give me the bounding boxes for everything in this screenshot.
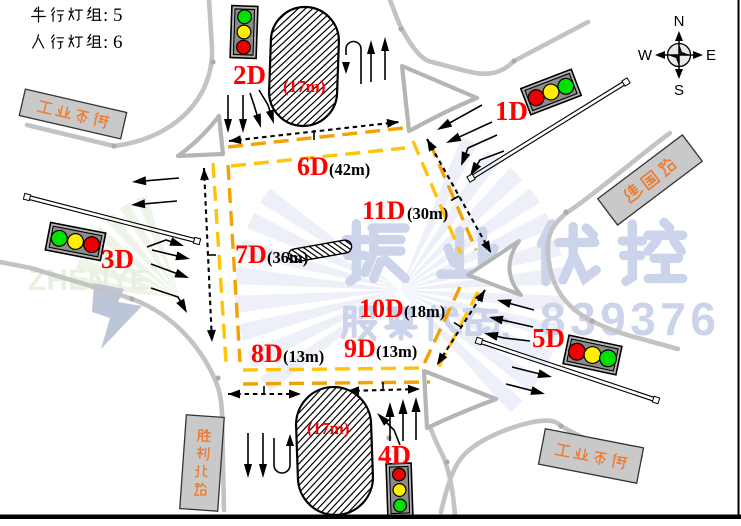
svg-text:6D: 6D (297, 152, 329, 181)
svg-text:(36m): (36m) (267, 248, 308, 267)
svg-text:(17m): (17m) (307, 419, 349, 438)
svg-text:11D: 11D (362, 196, 405, 225)
svg-text:: 5: : 5 (103, 5, 123, 26)
svg-text:: 6: : 6 (103, 32, 123, 53)
svg-text:4D: 4D (378, 440, 411, 470)
svg-text::: : (499, 303, 512, 347)
svg-text:E: E (706, 47, 716, 64)
svg-text:1D: 1D (495, 96, 528, 126)
svg-text:8D: 8D (251, 339, 283, 368)
svg-text:9D: 9D (344, 334, 376, 363)
svg-text:(18m): (18m) (404, 302, 445, 321)
svg-text:(13m): (13m) (283, 347, 324, 366)
svg-text:(42m): (42m) (329, 160, 370, 179)
svg-text:S: S (674, 82, 684, 99)
svg-text:3D: 3D (101, 244, 134, 274)
svg-text:W: W (638, 47, 653, 64)
svg-text:2D: 2D (233, 60, 266, 90)
svg-text:N: N (674, 13, 685, 30)
svg-text:7D: 7D (235, 240, 267, 269)
svg-text:5D: 5D (532, 323, 565, 353)
svg-text:10D: 10D (359, 294, 404, 323)
svg-text:(17m): (17m) (283, 77, 325, 96)
svg-text:(13m): (13m) (376, 342, 417, 361)
svg-text:(30m): (30m) (407, 204, 448, 223)
